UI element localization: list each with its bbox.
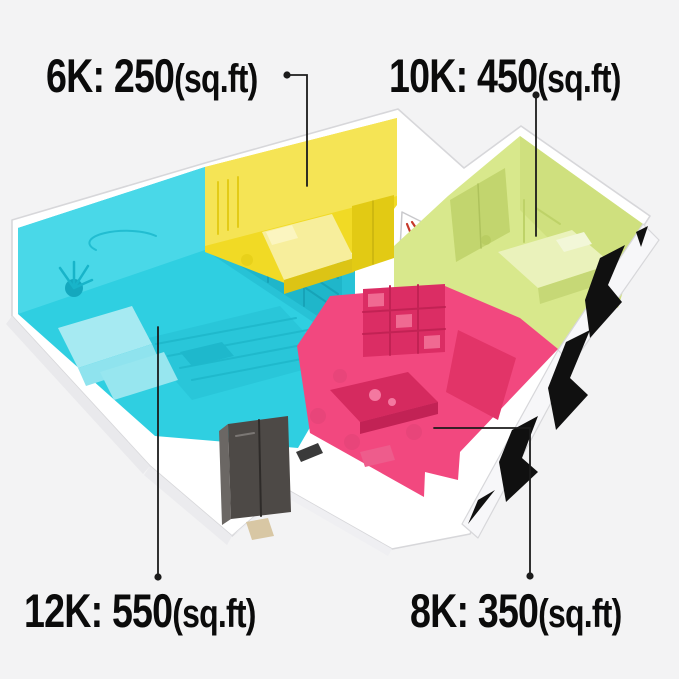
label-6k: 6K: 250(sq.ft): [46, 52, 257, 99]
kitchen-shelf-item: [424, 335, 440, 349]
table-dish: [388, 398, 396, 406]
label-10k-value: 10K: 450: [389, 49, 537, 102]
dining-chair: [333, 369, 347, 383]
bedroom2-nightstand: [481, 235, 491, 245]
floorplan-page: 6K: 250(sq.ft) 10K: 450(sq.ft) 12K: 550(…: [0, 0, 679, 679]
table-dish: [369, 389, 381, 401]
label-6k-value: 6K: 250: [46, 49, 174, 102]
entry-door-mat: [246, 518, 274, 540]
leader-dot-8k: [526, 572, 533, 579]
label-10k: 10K: 450(sq.ft): [389, 52, 621, 99]
label-8k: 8K: 350(sq.ft): [410, 587, 621, 634]
label-8k-value: 8K: 350: [410, 584, 538, 637]
label-10k-unit: (sq.ft): [537, 57, 620, 101]
label-12k: 12K: 550(sq.ft): [24, 587, 256, 634]
label-8k-unit: (sq.ft): [538, 592, 621, 636]
dining-chair: [406, 424, 422, 440]
bedroom1-stool: [241, 254, 253, 266]
kitchen-shelf-item: [368, 293, 384, 307]
label-12k-unit: (sq.ft): [172, 592, 255, 636]
dining-chair: [344, 434, 360, 450]
leader-dot-12k: [154, 573, 161, 580]
dining-chair: [310, 408, 326, 424]
kitchen-shelf-item: [396, 314, 412, 328]
label-12k-value: 12K: 550: [24, 584, 172, 637]
label-6k-unit: (sq.ft): [174, 57, 257, 101]
leader-dot-6k: [283, 71, 290, 78]
